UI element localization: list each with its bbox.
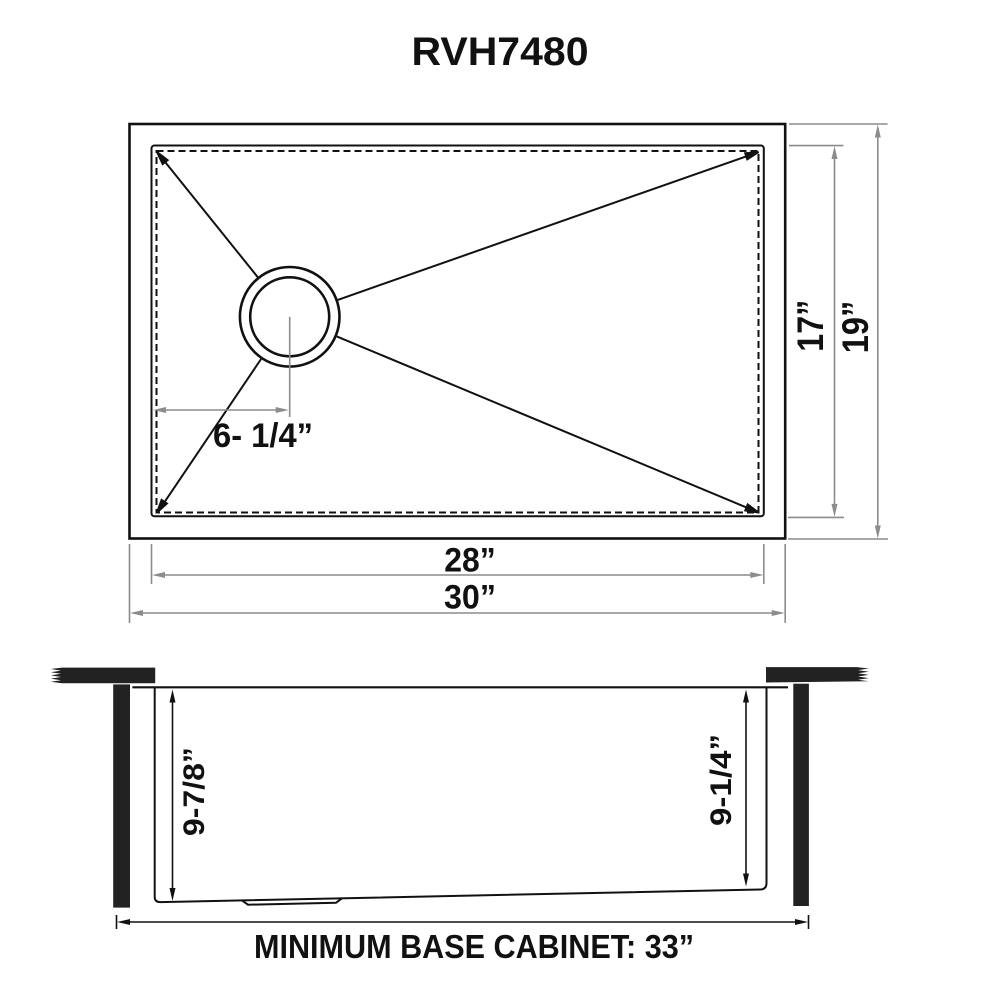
svg-text:17”: 17”: [790, 300, 831, 352]
svg-text:30”: 30”: [444, 579, 496, 617]
svg-text:19”: 19”: [835, 301, 876, 354]
svg-text:9-7/8”: 9-7/8”: [178, 747, 211, 836]
svg-text:9-1/4”: 9-1/4”: [705, 734, 738, 826]
svg-text:28”: 28”: [444, 542, 496, 580]
svg-text:RVH7480: RVH7480: [412, 30, 589, 74]
svg-text:MINIMUM BASE CABINET: 33”: MINIMUM BASE CABINET: 33”: [254, 928, 694, 965]
svg-text:6- 1/4”: 6- 1/4”: [213, 417, 313, 455]
